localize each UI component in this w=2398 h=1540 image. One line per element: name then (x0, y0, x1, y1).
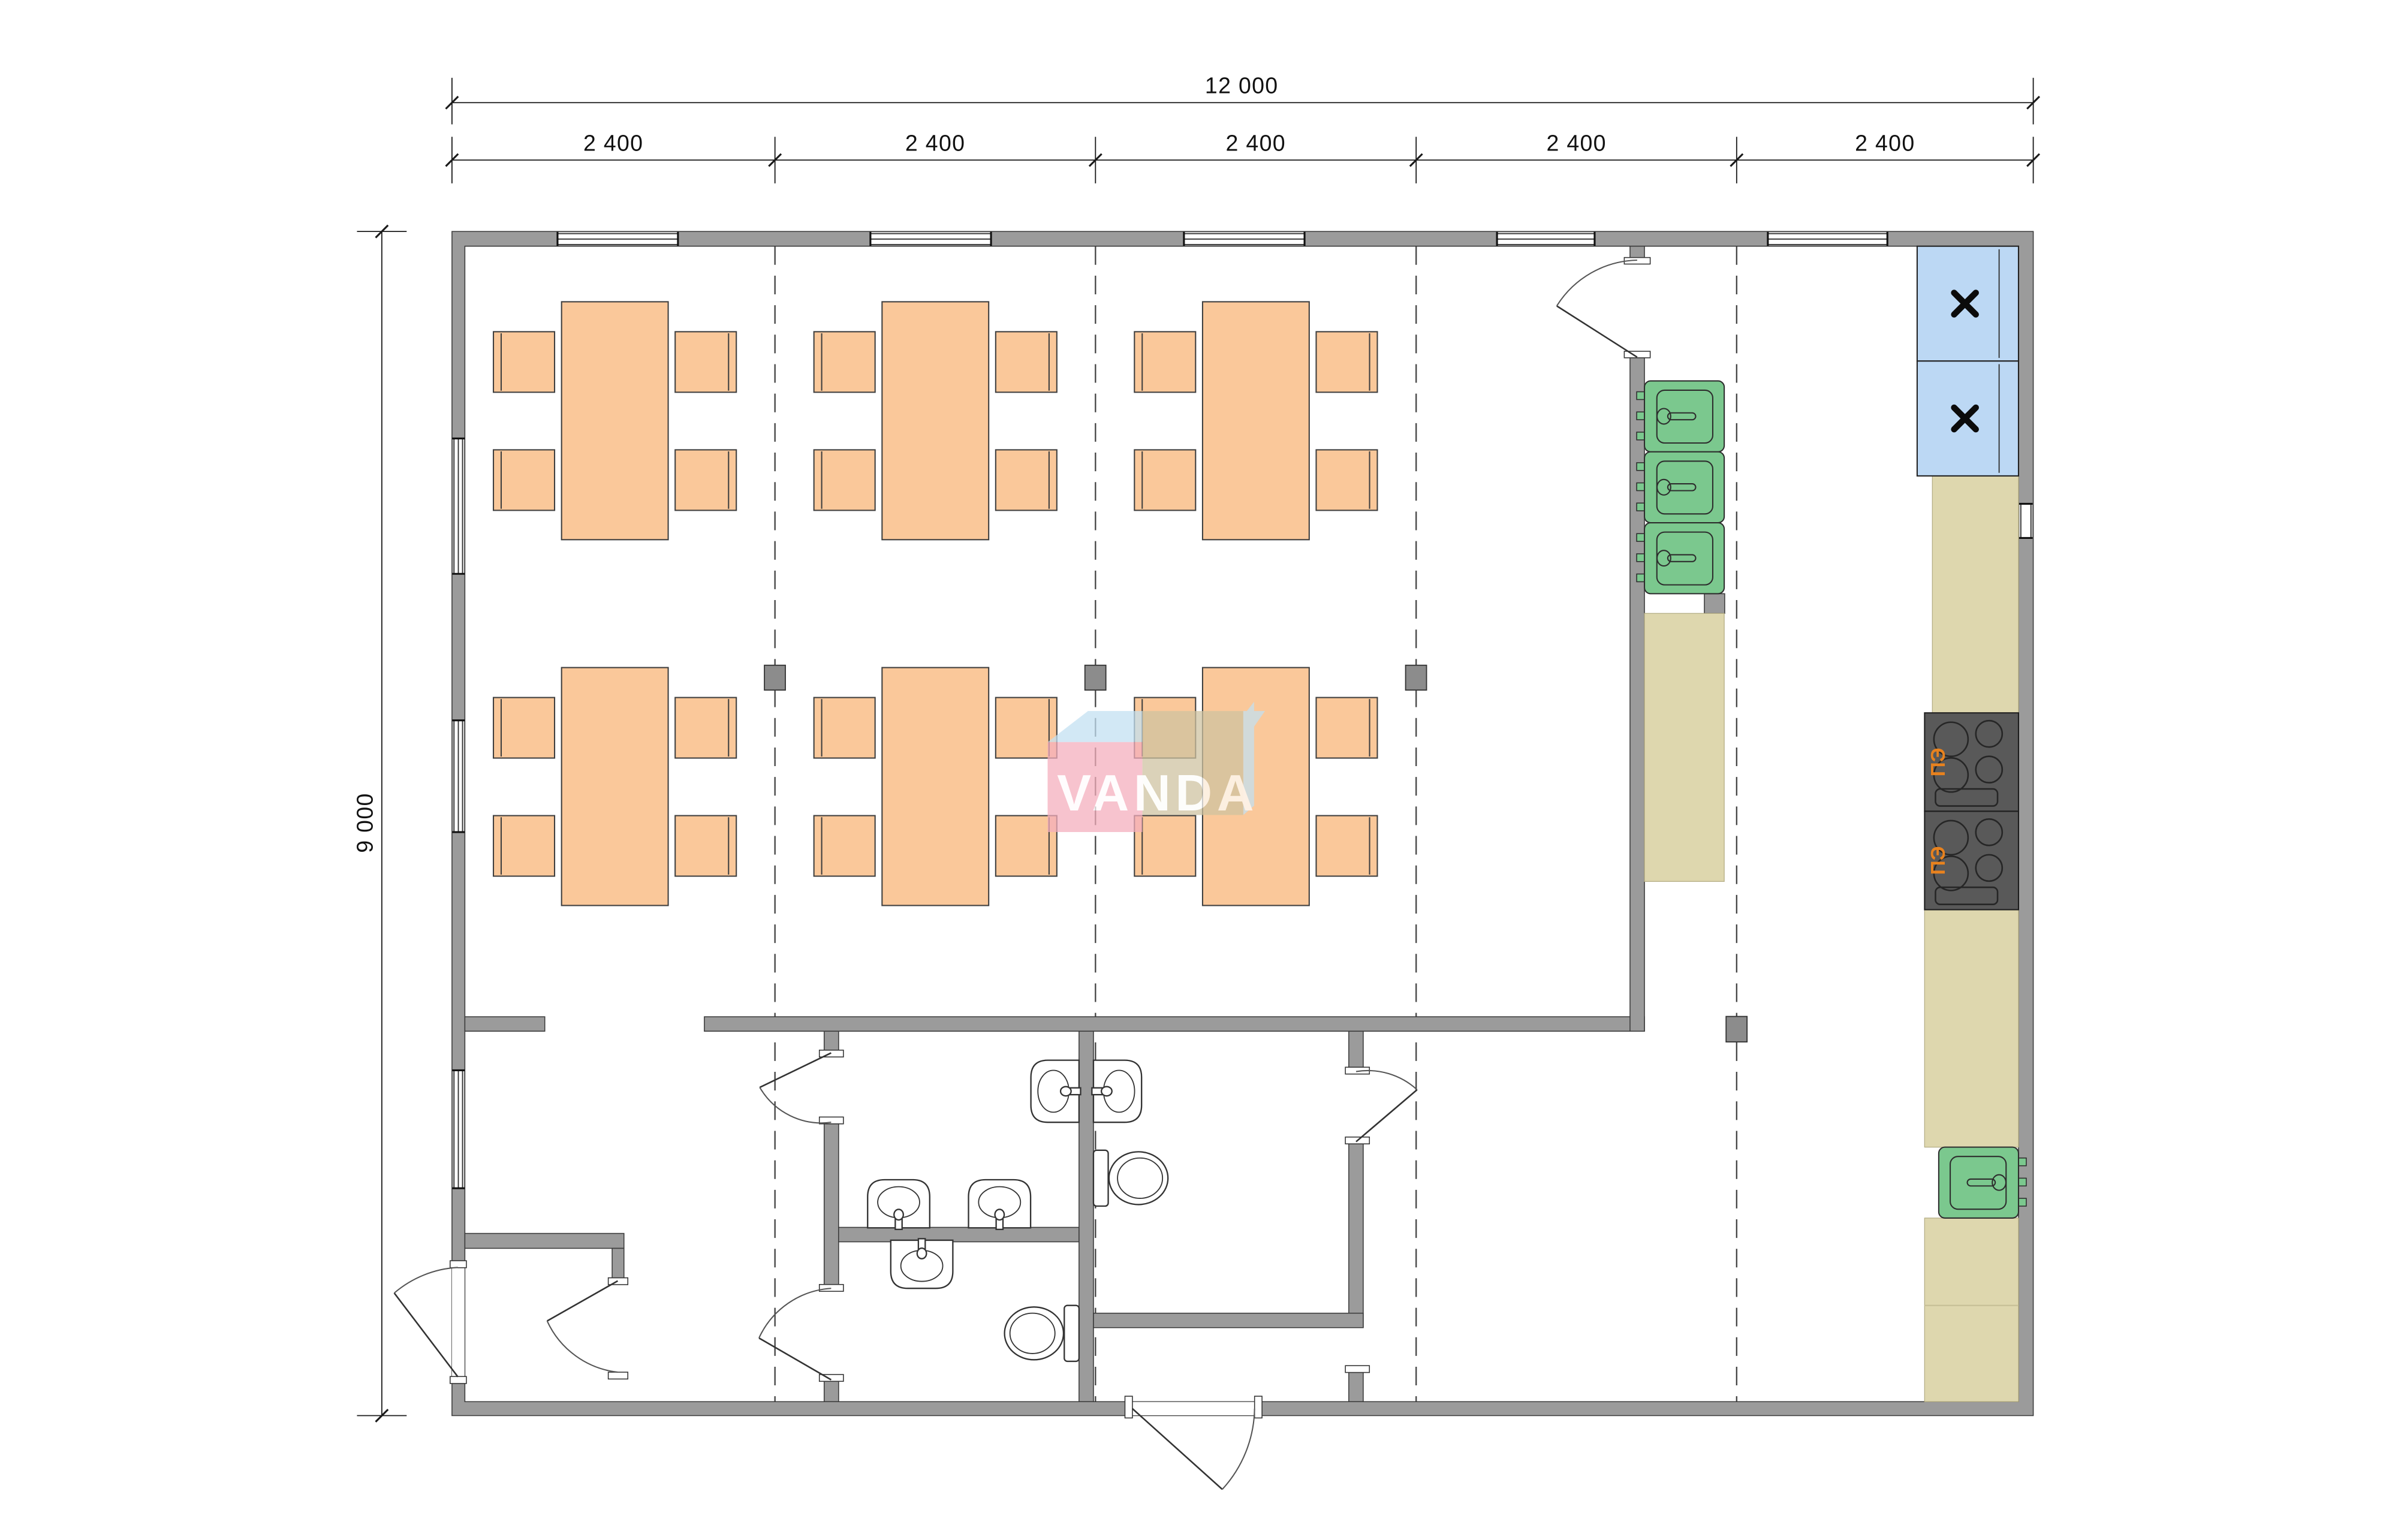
dimension-module-2: 2 400 (905, 130, 965, 155)
wash-basin (891, 1238, 953, 1288)
column-post (1726, 1017, 1747, 1042)
door-jamb (820, 1285, 843, 1291)
door-swing-icon (394, 1267, 458, 1377)
door-jamb (1125, 1396, 1132, 1418)
kitchen-counter (1924, 1218, 2019, 1402)
interior-wall (824, 1380, 839, 1402)
kitchen-counter (1644, 613, 1724, 881)
door-swing-icon (1557, 260, 1637, 357)
wash-basin (1092, 1060, 1141, 1123)
wash-basin (1031, 1060, 1081, 1123)
column-post (764, 665, 785, 690)
wash-basin (969, 1180, 1031, 1229)
wash-basin (867, 1180, 930, 1229)
watermark-text: VANDA (1057, 765, 1258, 822)
kitchen-counter (1932, 476, 2019, 713)
dining-table-group (814, 668, 1057, 906)
stove-label: ПЭ (1927, 846, 1950, 875)
interior-wall (1079, 1031, 1093, 1402)
interior-wall (1349, 1031, 1363, 1071)
kitchen-sink (1637, 381, 1724, 451)
door-swing-icon (759, 1288, 831, 1379)
window (558, 232, 678, 246)
column-post (1085, 665, 1106, 690)
kitchen-sink (1637, 523, 1724, 593)
interior-wall (1349, 1142, 1363, 1328)
door-jamb (450, 1376, 466, 1384)
door-opening (1132, 1402, 1255, 1415)
toilet (1005, 1306, 1079, 1361)
dining-table-group (1134, 302, 1377, 540)
door-swing-icon (1356, 1071, 1417, 1142)
door-opening (452, 1267, 465, 1377)
door-jamb (1255, 1396, 1262, 1418)
interior-wall (824, 1122, 839, 1288)
door-jamb (608, 1372, 628, 1379)
interior-wall (704, 1017, 1644, 1031)
interior-wall (612, 1248, 624, 1280)
stove-label: ПЭ (1927, 748, 1950, 776)
interior-wall (1630, 357, 1644, 1031)
dimension-module-1: 2 400 (583, 130, 643, 155)
window (452, 721, 465, 832)
watermark-logo: VANDA (1048, 702, 1265, 832)
kitchen-counter (1924, 910, 2019, 1147)
interior-wall (465, 1234, 623, 1249)
floor-plan-canvas: 12 000 2 400 2 400 2 400 2 400 2 400 9 0… (0, 0, 2398, 1540)
dimension-total-width: 12 000 (1205, 73, 1279, 98)
dimension-module-3: 2 400 (1226, 130, 1286, 155)
refrigerator (1917, 246, 2019, 361)
dimension-module-4: 2 400 (1546, 130, 1606, 155)
interior-wall (1349, 1372, 1363, 1402)
column-post (1406, 665, 1427, 690)
window (870, 232, 991, 246)
door-swing-icon (547, 1281, 618, 1372)
prep-sink (1939, 1147, 2026, 1218)
window (1184, 232, 1305, 246)
door-jamb (1345, 1366, 1369, 1372)
dining-table-group (493, 668, 736, 906)
interior-wall (839, 1227, 1079, 1241)
door-swing-icon (1132, 1409, 1255, 1490)
door-jamb (608, 1278, 628, 1285)
kitchen-sink (1637, 452, 1724, 523)
window (1768, 232, 1887, 246)
window (2019, 504, 2033, 538)
door-jamb (450, 1261, 466, 1268)
window (1497, 232, 1595, 246)
floor-plan: 12 000 2 400 2 400 2 400 2 400 2 400 9 0… (0, 0, 2398, 1540)
window (452, 438, 465, 574)
dining-table-group (814, 302, 1057, 540)
toilet (1093, 1150, 1168, 1206)
interior-wall (1093, 1313, 1363, 1328)
window (452, 1070, 465, 1188)
interior-wall (465, 1017, 544, 1031)
kitchen-area: ПЭ ПЭ (1637, 246, 2026, 1402)
interior-wall (1704, 593, 1725, 613)
dimension-total-height: 9 000 (352, 792, 377, 852)
dining-table-group (493, 302, 736, 540)
refrigerator (1917, 361, 2019, 476)
dimension-module-5: 2 400 (1855, 130, 1915, 155)
door-swing-icon (760, 1053, 831, 1123)
